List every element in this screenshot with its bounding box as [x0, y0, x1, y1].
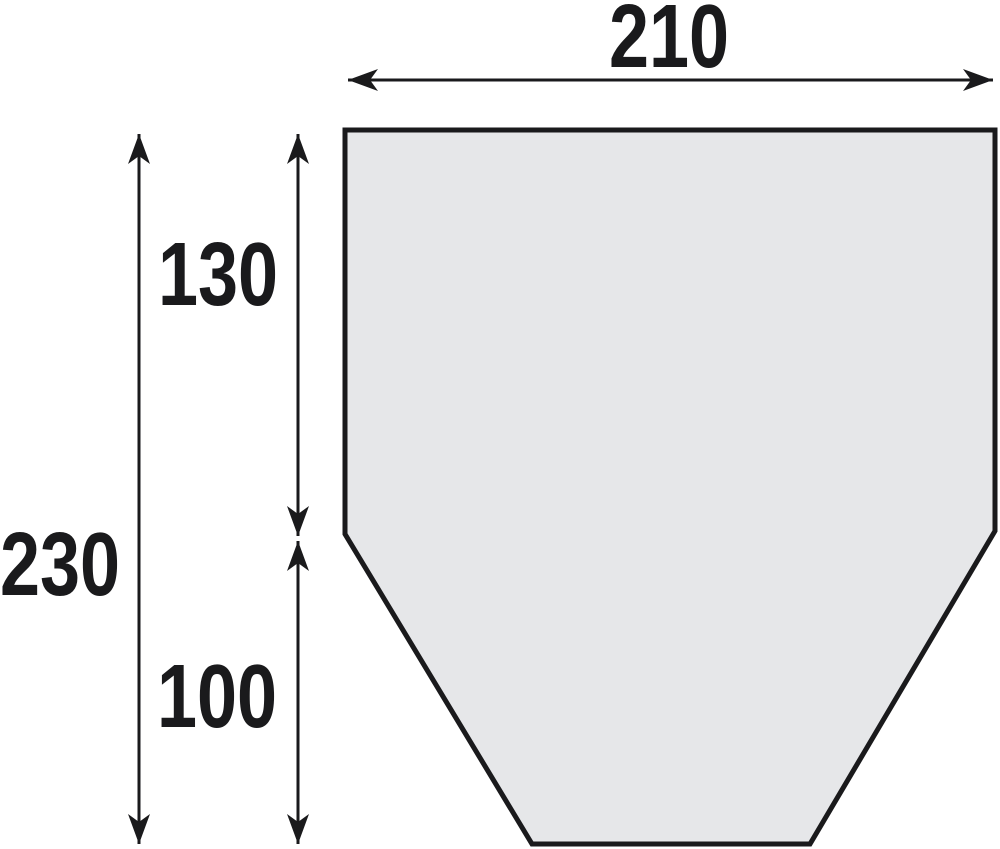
- dimension-label-overall-width: 210: [609, 0, 729, 87]
- dimension-diagram: 210230130100: [0, 0, 1000, 849]
- dimension-lower-height: 100: [157, 541, 309, 844]
- diagram-canvas: 210230130100: [0, 0, 1000, 849]
- dimension-overall-width: 210: [348, 0, 993, 91]
- dimension-label-upper-height: 130: [158, 224, 278, 324]
- dimension-label-overall-height: 230: [0, 514, 120, 614]
- dimension-overall-height: 230: [0, 134, 150, 844]
- shape-tapered-panel-outline: [345, 130, 995, 844]
- dimension-upper-height: 130: [158, 134, 309, 536]
- dimension-label-lower-height: 100: [157, 646, 277, 746]
